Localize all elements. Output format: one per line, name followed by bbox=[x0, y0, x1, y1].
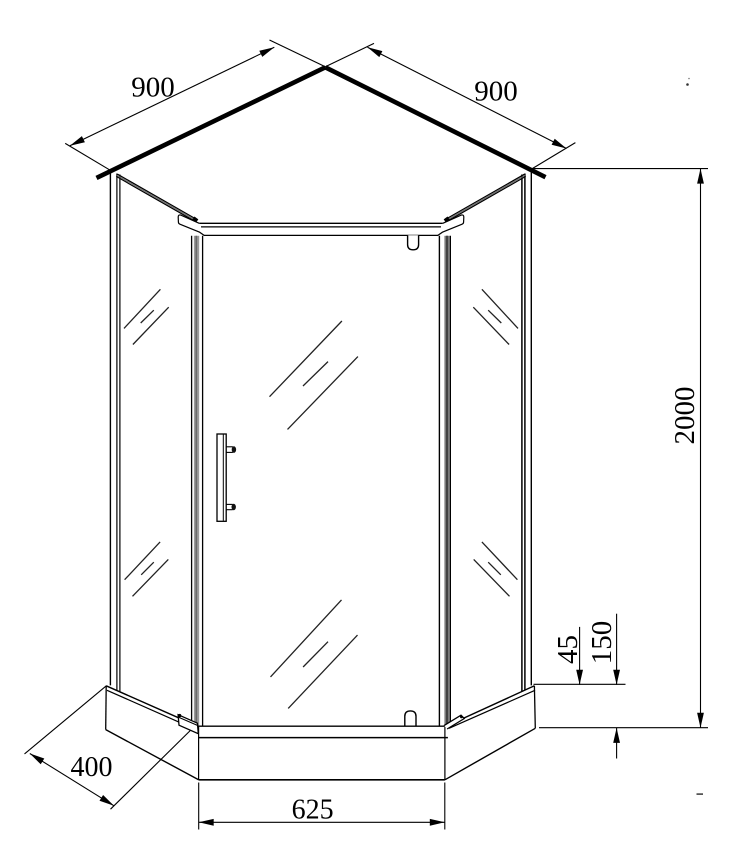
svg-text:2000: 2000 bbox=[669, 387, 701, 445]
svg-text:400: 400 bbox=[71, 752, 113, 783]
svg-text:150: 150 bbox=[586, 621, 618, 665]
svg-text:900: 900 bbox=[474, 76, 518, 108]
svg-text:900: 900 bbox=[131, 71, 175, 103]
svg-text:625: 625 bbox=[292, 795, 334, 826]
svg-text:45: 45 bbox=[552, 635, 584, 664]
